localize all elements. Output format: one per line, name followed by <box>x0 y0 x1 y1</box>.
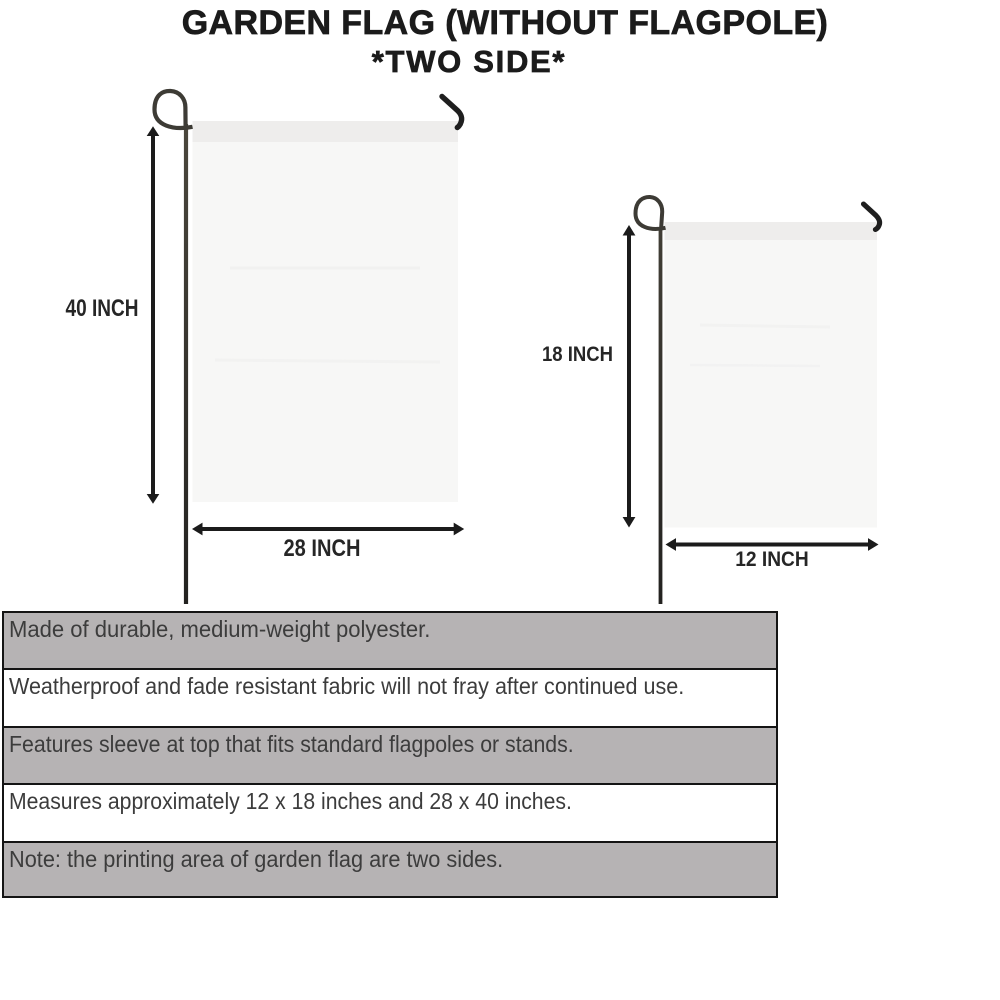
svg-text:18 INCH: 18 INCH <box>542 342 613 366</box>
svg-text:28 INCH: 28 INCH <box>284 535 361 562</box>
svg-text:12 INCH: 12 INCH <box>735 547 809 571</box>
svg-text:40 INCH: 40 INCH <box>66 295 139 322</box>
